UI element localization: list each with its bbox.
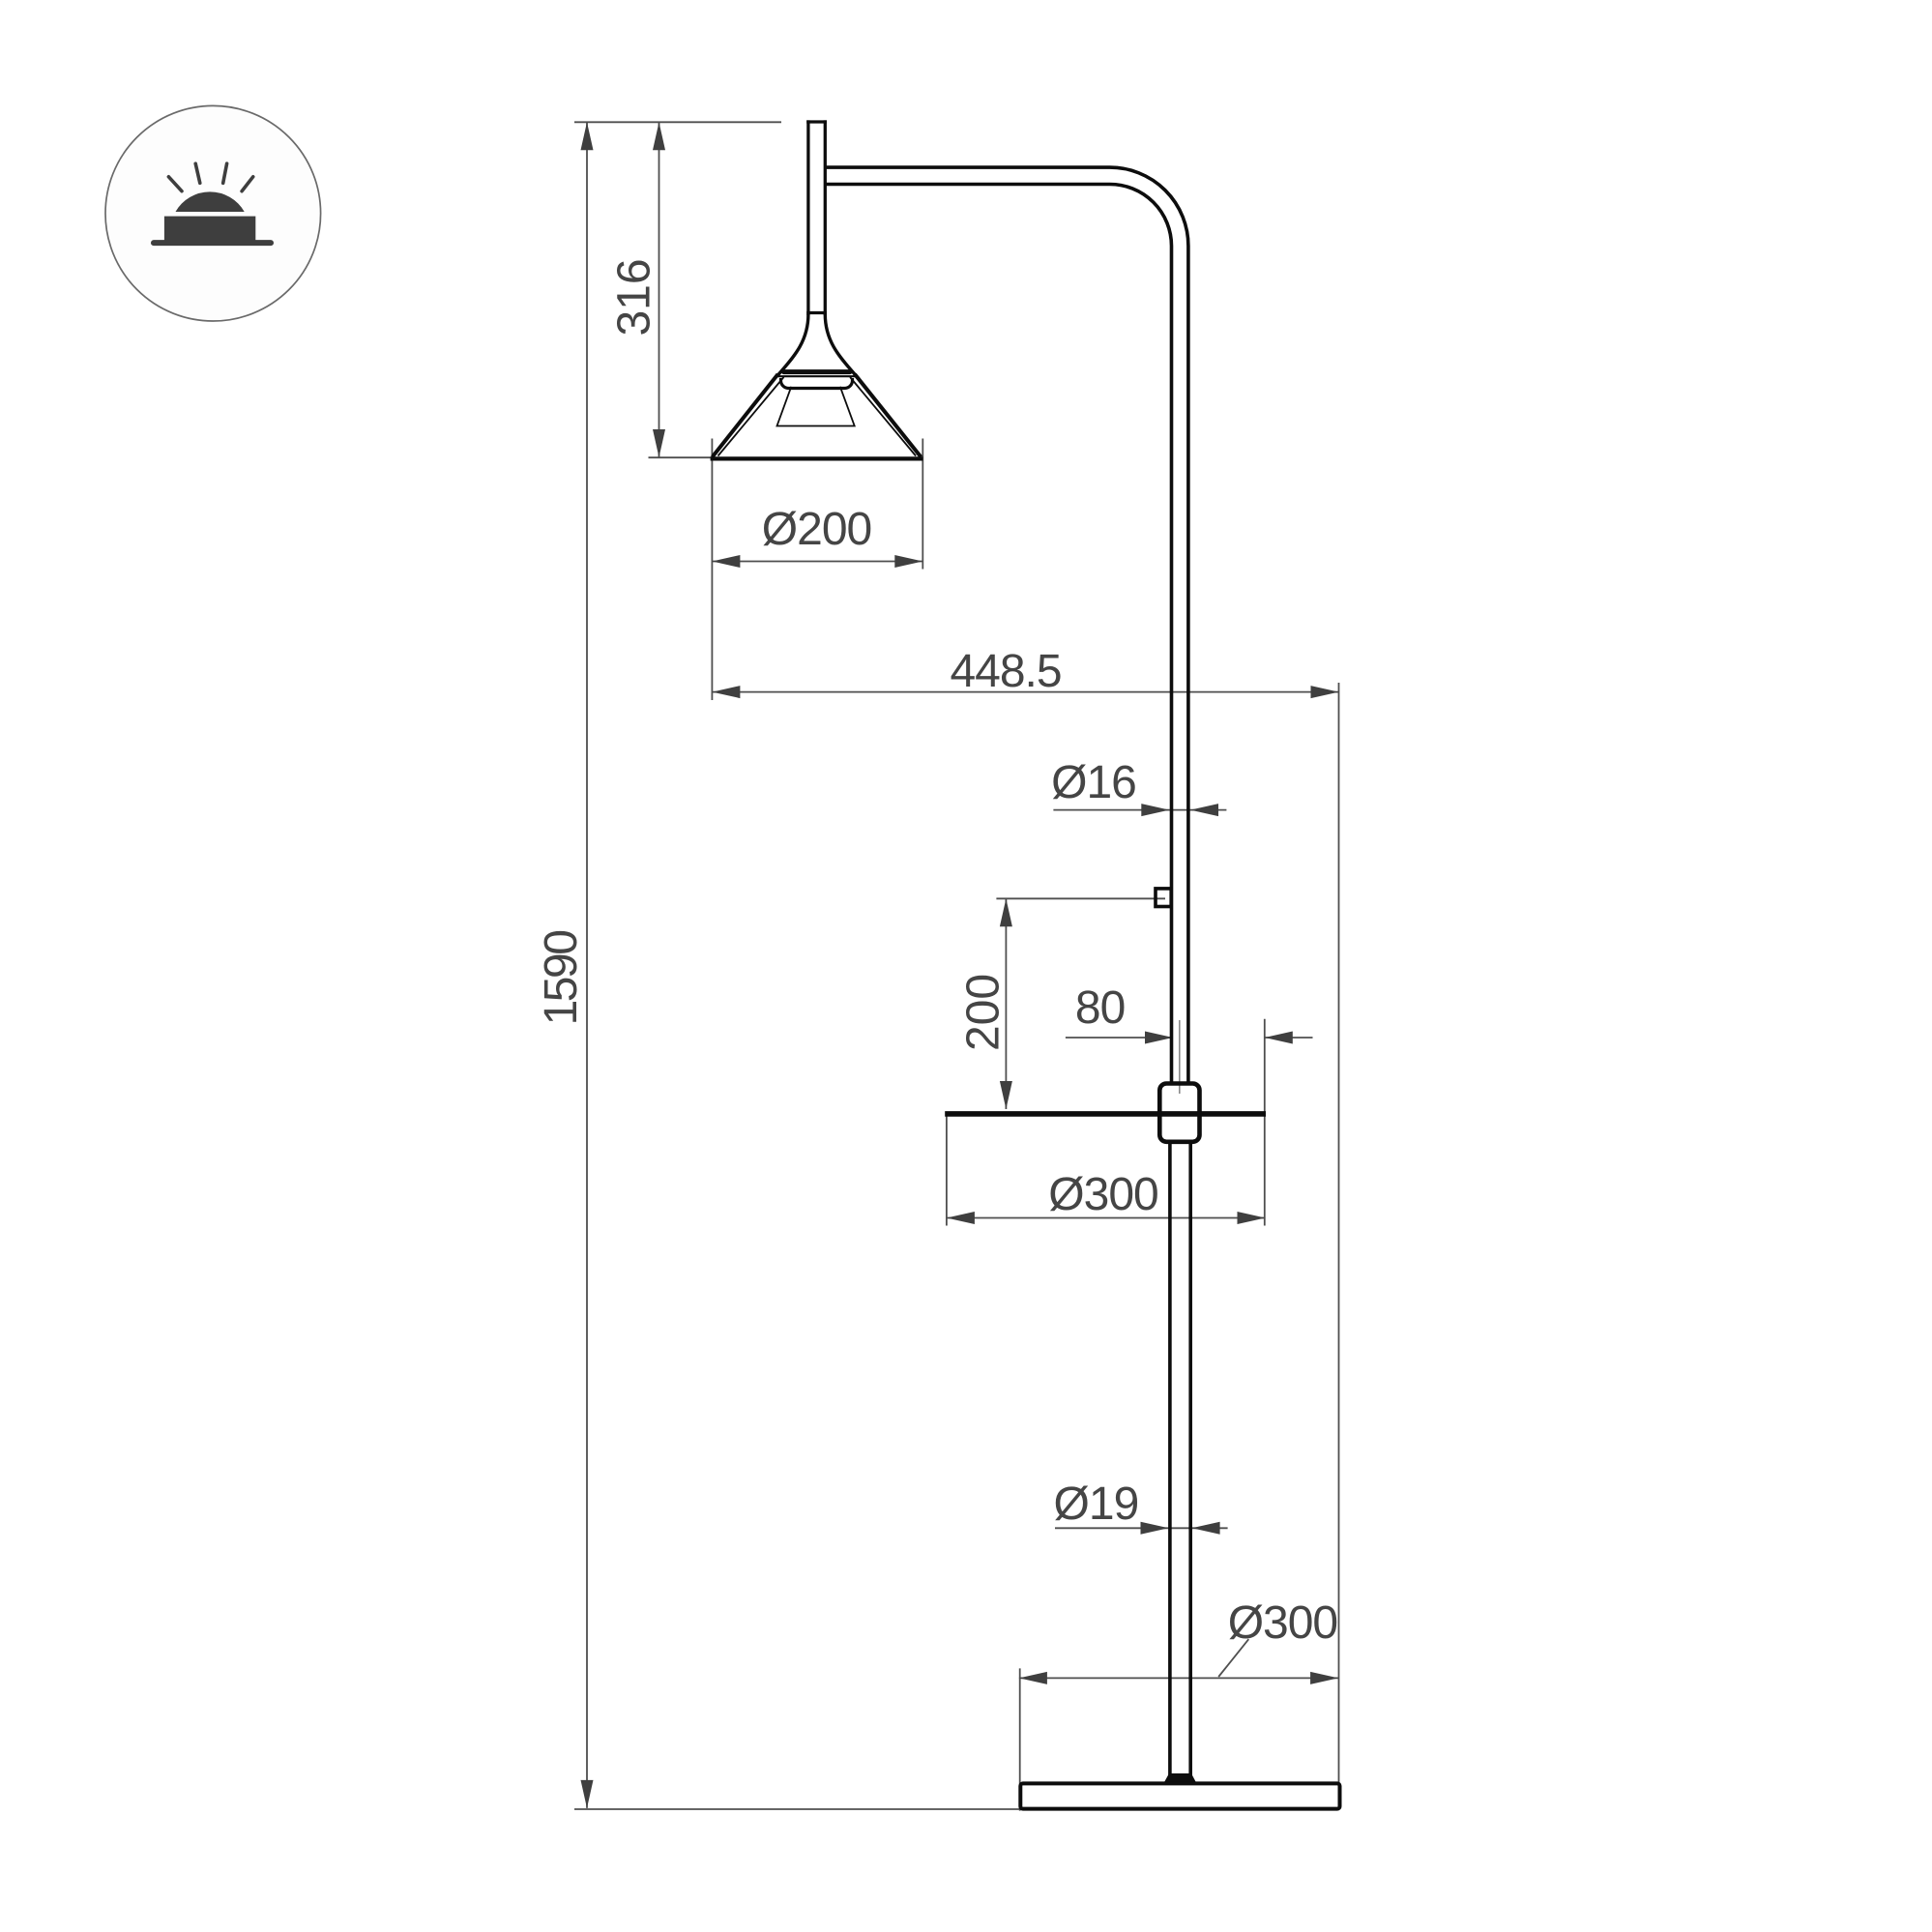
svg-text:200: 200: [958, 974, 1010, 1051]
svg-text:316: 316: [609, 258, 660, 336]
svg-text:Ø300: Ø300: [1048, 1169, 1157, 1220]
svg-text:1590: 1590: [536, 931, 587, 1026]
svg-text:Ø200: Ø200: [762, 504, 871, 555]
svg-text:80: 80: [1075, 982, 1125, 1034]
svg-text:448.5: 448.5: [950, 646, 1061, 697]
svg-text:Ø300: Ø300: [1228, 1597, 1337, 1649]
svg-text:Ø19: Ø19: [1054, 1478, 1139, 1530]
svg-text:Ø16: Ø16: [1051, 757, 1136, 808]
